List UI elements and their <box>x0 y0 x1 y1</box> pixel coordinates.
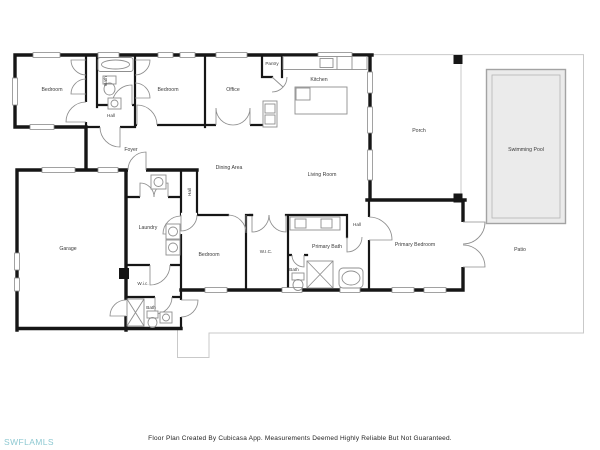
room-label-bath-top: Bath <box>103 76 108 86</box>
closet-door <box>71 60 86 75</box>
door-bedroom-3 <box>228 215 246 233</box>
door-wic-2 <box>150 265 170 285</box>
room-label-primary-bedroom: Primary Bedroom <box>395 242 435 248</box>
window <box>98 168 118 173</box>
toilet-bowl <box>148 318 157 328</box>
window <box>424 288 446 293</box>
mls-watermark: SWFLAMLS <box>4 437 54 447</box>
fixtures <box>98 57 367 328</box>
room-label-porch: Porch <box>412 128 426 134</box>
room-label-office: Office <box>226 87 240 93</box>
room-label-swimming-pool: Swimming Pool <box>508 147 544 153</box>
room-label-bath-pool: Bath <box>146 305 156 310</box>
room-label-hall-middle: Hall <box>187 188 192 196</box>
window <box>368 107 373 133</box>
porch-post-top <box>454 55 463 64</box>
floor-plan-drawing: Bedroom Bath Bedroom Office Pantry Kitch… <box>0 0 600 450</box>
toilet-tank <box>292 273 304 280</box>
room-label-garage: Garage <box>59 246 76 252</box>
window <box>158 53 173 58</box>
door-patio-bottom <box>463 245 485 267</box>
door-primary-bath <box>347 237 362 252</box>
room-label-dining-area: Dining Area <box>216 165 243 171</box>
room-label-laundry: Laundry <box>139 225 158 231</box>
door-wic-left <box>252 215 269 232</box>
room-label-primary-bath: Primary Bath <box>312 244 342 250</box>
door-garage <box>110 300 126 316</box>
window <box>205 288 227 293</box>
room-label-kitchen: Kitchen <box>310 77 327 83</box>
window <box>392 288 414 293</box>
door-office-right <box>233 108 250 125</box>
room-label-bedroom-3: Bedroom <box>198 252 219 258</box>
room-label-foyer: Foyer <box>124 147 138 153</box>
window <box>30 125 54 130</box>
room-label-bath-toilet-room: Bath <box>289 267 299 272</box>
kitchen-island <box>295 87 347 114</box>
window <box>33 53 60 58</box>
door-bedroom-1 <box>66 102 86 122</box>
door-bedroom-2 <box>137 105 157 125</box>
chase-block <box>119 268 129 279</box>
window <box>15 253 20 270</box>
door-patio-top <box>463 222 485 244</box>
room-label-patio: Patio <box>514 247 526 253</box>
room-label-living-room: Living Room <box>308 172 337 178</box>
closet-door <box>135 83 150 98</box>
floor-plan-canvas: Bedroom Bath Bedroom Office Pantry Kitch… <box>0 0 600 450</box>
window <box>15 278 20 291</box>
porch-screen <box>454 55 463 203</box>
closet-door <box>71 79 86 94</box>
door-front-entry <box>128 152 146 170</box>
room-label-hall-primary: Hall <box>353 222 361 227</box>
door-hall-foyer <box>100 127 120 147</box>
disclaimer-text: Floor Plan Created By Cubicasa App. Meas… <box>0 435 600 442</box>
window <box>216 53 247 58</box>
door-wic-right <box>269 215 286 232</box>
toilet-tank <box>147 311 158 318</box>
door-bath-exterior <box>181 300 198 317</box>
room-label-hall-top: Hall <box>107 113 115 118</box>
room-label-bedroom-1: Bedroom <box>41 87 62 93</box>
window <box>368 72 373 93</box>
window <box>180 53 195 58</box>
room-label-wic-primary: W.I.C. <box>260 249 273 254</box>
window <box>98 53 119 58</box>
room-label-pantry: Pantry <box>265 61 279 66</box>
closet-door <box>135 60 150 75</box>
room-label-wic-2: W.i.c. <box>137 281 148 286</box>
window <box>13 78 18 105</box>
room-label-bedroom-2: Bedroom <box>157 87 178 93</box>
window <box>368 150 373 180</box>
window <box>42 168 75 173</box>
door-pantry <box>272 77 287 92</box>
door-primary-bedroom <box>369 217 392 240</box>
door-office-left <box>216 108 233 125</box>
